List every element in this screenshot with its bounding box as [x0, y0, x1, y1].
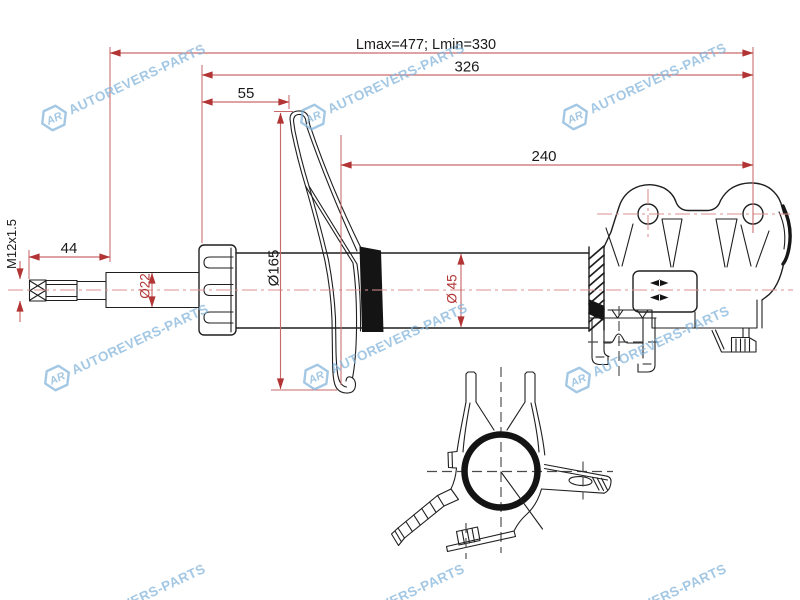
label-seat-offset: 55	[238, 85, 255, 102]
label-overall-length: Lmax=477; Lmin=330	[356, 37, 496, 53]
watermark	[559, 558, 730, 600]
side-tab	[542, 462, 612, 500]
watermark	[562, 300, 733, 395]
watermark	[297, 558, 468, 600]
strut-technical-drawing: AR AUTOREVERS-PARTS	[0, 0, 800, 600]
bracket-foot	[712, 328, 756, 352]
knuckle-bracket	[588, 183, 790, 377]
bottom-view-centerlines	[427, 367, 613, 553]
label-thread-spec: M12x1.5	[4, 219, 19, 269]
bolt-plate	[633, 271, 697, 312]
bottom-bracket-view	[392, 367, 614, 559]
watermarks	[38, 37, 733, 600]
watermark	[41, 298, 212, 393]
rib-inner-left	[662, 219, 682, 267]
label-seat-diameter: Ø165	[266, 250, 283, 287]
bracket-lower-edges	[590, 300, 762, 328]
lower-left-arm	[392, 489, 459, 546]
watermark	[38, 558, 209, 600]
watermark	[559, 37, 730, 132]
bracket-top-profile	[604, 183, 784, 247]
rib-outer-right	[741, 225, 769, 267]
bottom-tab	[447, 523, 516, 559]
label-tube-diameter: Ø 45	[445, 274, 460, 303]
rib-outer-left	[606, 224, 633, 266]
rib-inner-right	[716, 219, 737, 267]
bracket-flange	[783, 206, 790, 264]
label-mount-length: 240	[531, 148, 556, 165]
label-thread-length: 44	[61, 240, 78, 257]
label-upper-length: 326	[454, 59, 479, 76]
watermark	[300, 297, 471, 392]
seat-weld-collar	[360, 247, 384, 333]
tab-slot	[569, 476, 593, 486]
label-rod-diameter: Ø22	[138, 273, 153, 299]
